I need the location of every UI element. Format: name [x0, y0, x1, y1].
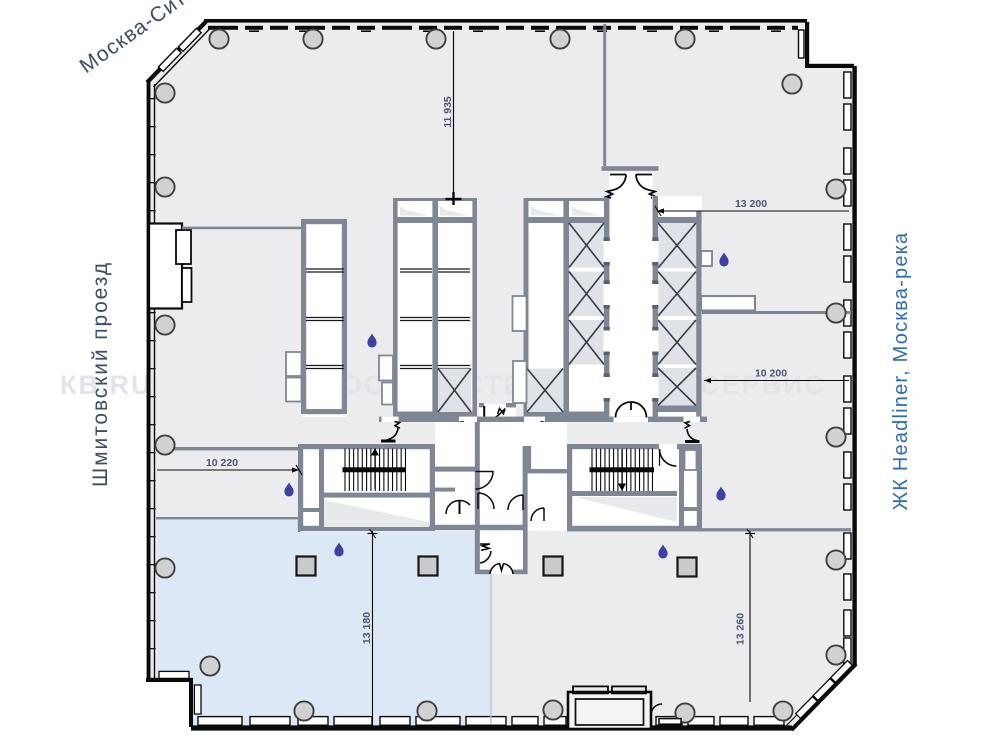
svg-text:ЖК Headliner, Москва-река: ЖК Headliner, Москва-река: [890, 232, 912, 511]
svg-text:13 260: 13 260: [735, 613, 747, 645]
svg-text:13 200: 13 200: [735, 198, 767, 210]
svg-text:13 180: 13 180: [361, 612, 373, 644]
svg-text:11 935: 11 935: [442, 96, 454, 128]
svg-text:Шмитовский проезд: Шмитовский проезд: [89, 261, 112, 487]
svg-text:10 220: 10 220: [206, 457, 238, 469]
svg-text:10 200: 10 200: [755, 368, 787, 380]
